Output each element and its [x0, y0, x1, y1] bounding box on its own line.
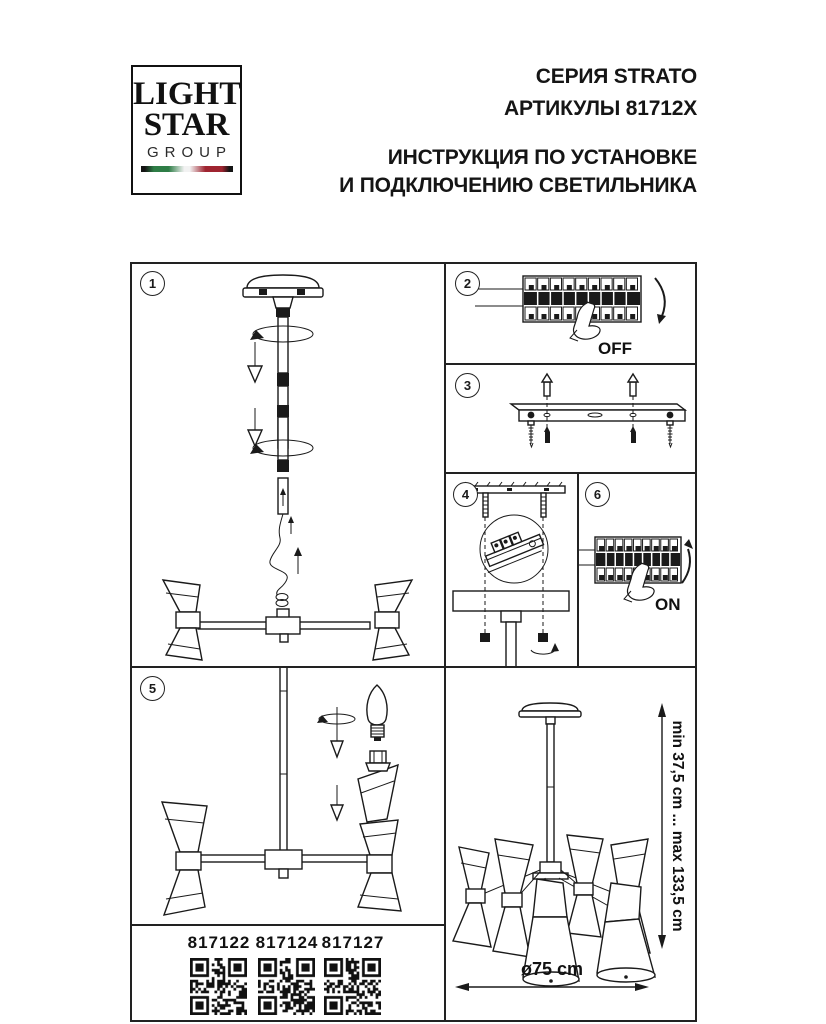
bowtie-shade-right [358, 820, 401, 911]
grid-divider-vertical-main [444, 262, 446, 1022]
instruction-title: ИНСТРУКЦИЯ ПО УСТАНОВКЕ И ПОДКЛЮЧЕНИЮ СВ… [339, 144, 697, 200]
title-block: СЕРИЯ STRATO АРТИКУЛЫ 81712X [504, 61, 697, 125]
step-number-5: 5 [149, 681, 156, 696]
step-number-6: 6 [594, 487, 601, 502]
step-badge-3: 3 [455, 373, 480, 398]
down-arrow-1 [248, 342, 262, 382]
screw-right [667, 421, 673, 447]
down-arrow-2 [248, 408, 262, 446]
curved-arrow-up [682, 539, 693, 583]
italian-flag-bar [141, 166, 233, 172]
ceiling-canopy [243, 275, 323, 317]
height-dimension-arrow [658, 703, 666, 949]
logo-word-light: LIGHT [133, 79, 240, 110]
dimensions-drawing: min 37,5 cm ... max 133,5 cm ø75 cm [445, 667, 697, 1022]
logo-word-star: STAR [133, 110, 240, 141]
qr-code-817122 [190, 958, 247, 1015]
nut-left [480, 633, 490, 642]
step-badge-1: 1 [140, 271, 165, 296]
wall-anchor-right [628, 374, 638, 396]
qr-code-817124 [258, 958, 315, 1015]
off-label: OFF [598, 339, 632, 358]
up-arrow-small [288, 516, 294, 534]
qr-code-817127 [324, 958, 381, 1015]
step-badge-4: 4 [453, 482, 478, 507]
terminal-block [478, 525, 545, 572]
rotate-arrow-nut [531, 643, 559, 654]
canopy-plate [453, 591, 569, 667]
panel3-bracket-drawing [445, 364, 697, 473]
screw-pin-right [630, 426, 636, 443]
grid-divider-horizontal-qr [130, 924, 445, 926]
rotate-arrow [317, 714, 355, 724]
bowtie-shade-left [162, 802, 207, 915]
shade-back-left [453, 847, 491, 947]
fixture-hub [198, 609, 370, 642]
shade-mid-left [493, 839, 533, 957]
instruction-sheet: LIGHT STAR GROUP СЕРИЯ STRATO АРТИКУЛЫ 8… [0, 0, 826, 1024]
step-number-4: 4 [462, 487, 469, 502]
on-label: ON [655, 595, 681, 614]
lightstar-logo: LIGHT STAR GROUP [131, 65, 242, 195]
step-number-3: 3 [464, 378, 471, 393]
instruction-line-1: ИНСТРУКЦИЯ ПО УСТАНОВКЕ [339, 144, 697, 172]
panel1-rod-assembly-drawing [130, 262, 445, 667]
step-badge-2: 2 [455, 271, 480, 296]
nut-right [538, 633, 548, 642]
mounting-bracket [511, 404, 685, 421]
screw-pin-left [544, 426, 550, 443]
logo-word-group: GROUP [133, 144, 240, 161]
step-badge-5: 5 [140, 676, 165, 701]
grid-divider-horizontal-step3 [444, 472, 697, 474]
rod [280, 667, 287, 852]
grid-divider-horizontal-mid [130, 666, 697, 668]
grid-divider-horizontal-step2 [444, 363, 697, 365]
chandelier-rod [547, 724, 554, 862]
step-number-2: 2 [464, 276, 471, 291]
fixture-hub [195, 850, 380, 878]
instruction-line-2: И ПОДКЛЮЧЕНИЮ СВЕТИЛЬНИКА [339, 172, 697, 200]
lamp-socket [366, 751, 390, 771]
curved-arrow-down [655, 278, 666, 324]
panel2-breaker-off-drawing: OFF [445, 262, 697, 364]
step-badge-6: 6 [585, 482, 610, 507]
step-number-1: 1 [149, 276, 156, 291]
height-dimension-label: min 37,5 cm ... max 133,5 cm [669, 720, 686, 931]
diameter-dimension-label: ø75 cm [521, 959, 583, 979]
rod-sections [277, 317, 289, 514]
candle-bulb [367, 685, 387, 741]
wire [270, 514, 302, 607]
chandelier-canopy [519, 703, 581, 724]
bowtie-shade-left [163, 580, 202, 660]
series-title: СЕРИЯ STRATO [504, 61, 697, 93]
articles-title: АРТИКУЛЫ 81712X [504, 93, 697, 125]
bowtie-shade-right [373, 580, 412, 660]
down-arrow-2 [331, 785, 343, 820]
wall-anchor-left [542, 374, 552, 396]
article-code-3: 817127 [308, 933, 398, 953]
panel5-shade-bulb-drawing [130, 667, 445, 925]
shade-front-right [597, 883, 655, 982]
threaded-stud-right [541, 493, 546, 517]
screw-left [528, 421, 534, 447]
upper-shade-cone [358, 765, 398, 822]
grid-divider-vertical-step4 [577, 473, 579, 667]
threaded-stud-left [483, 493, 488, 517]
